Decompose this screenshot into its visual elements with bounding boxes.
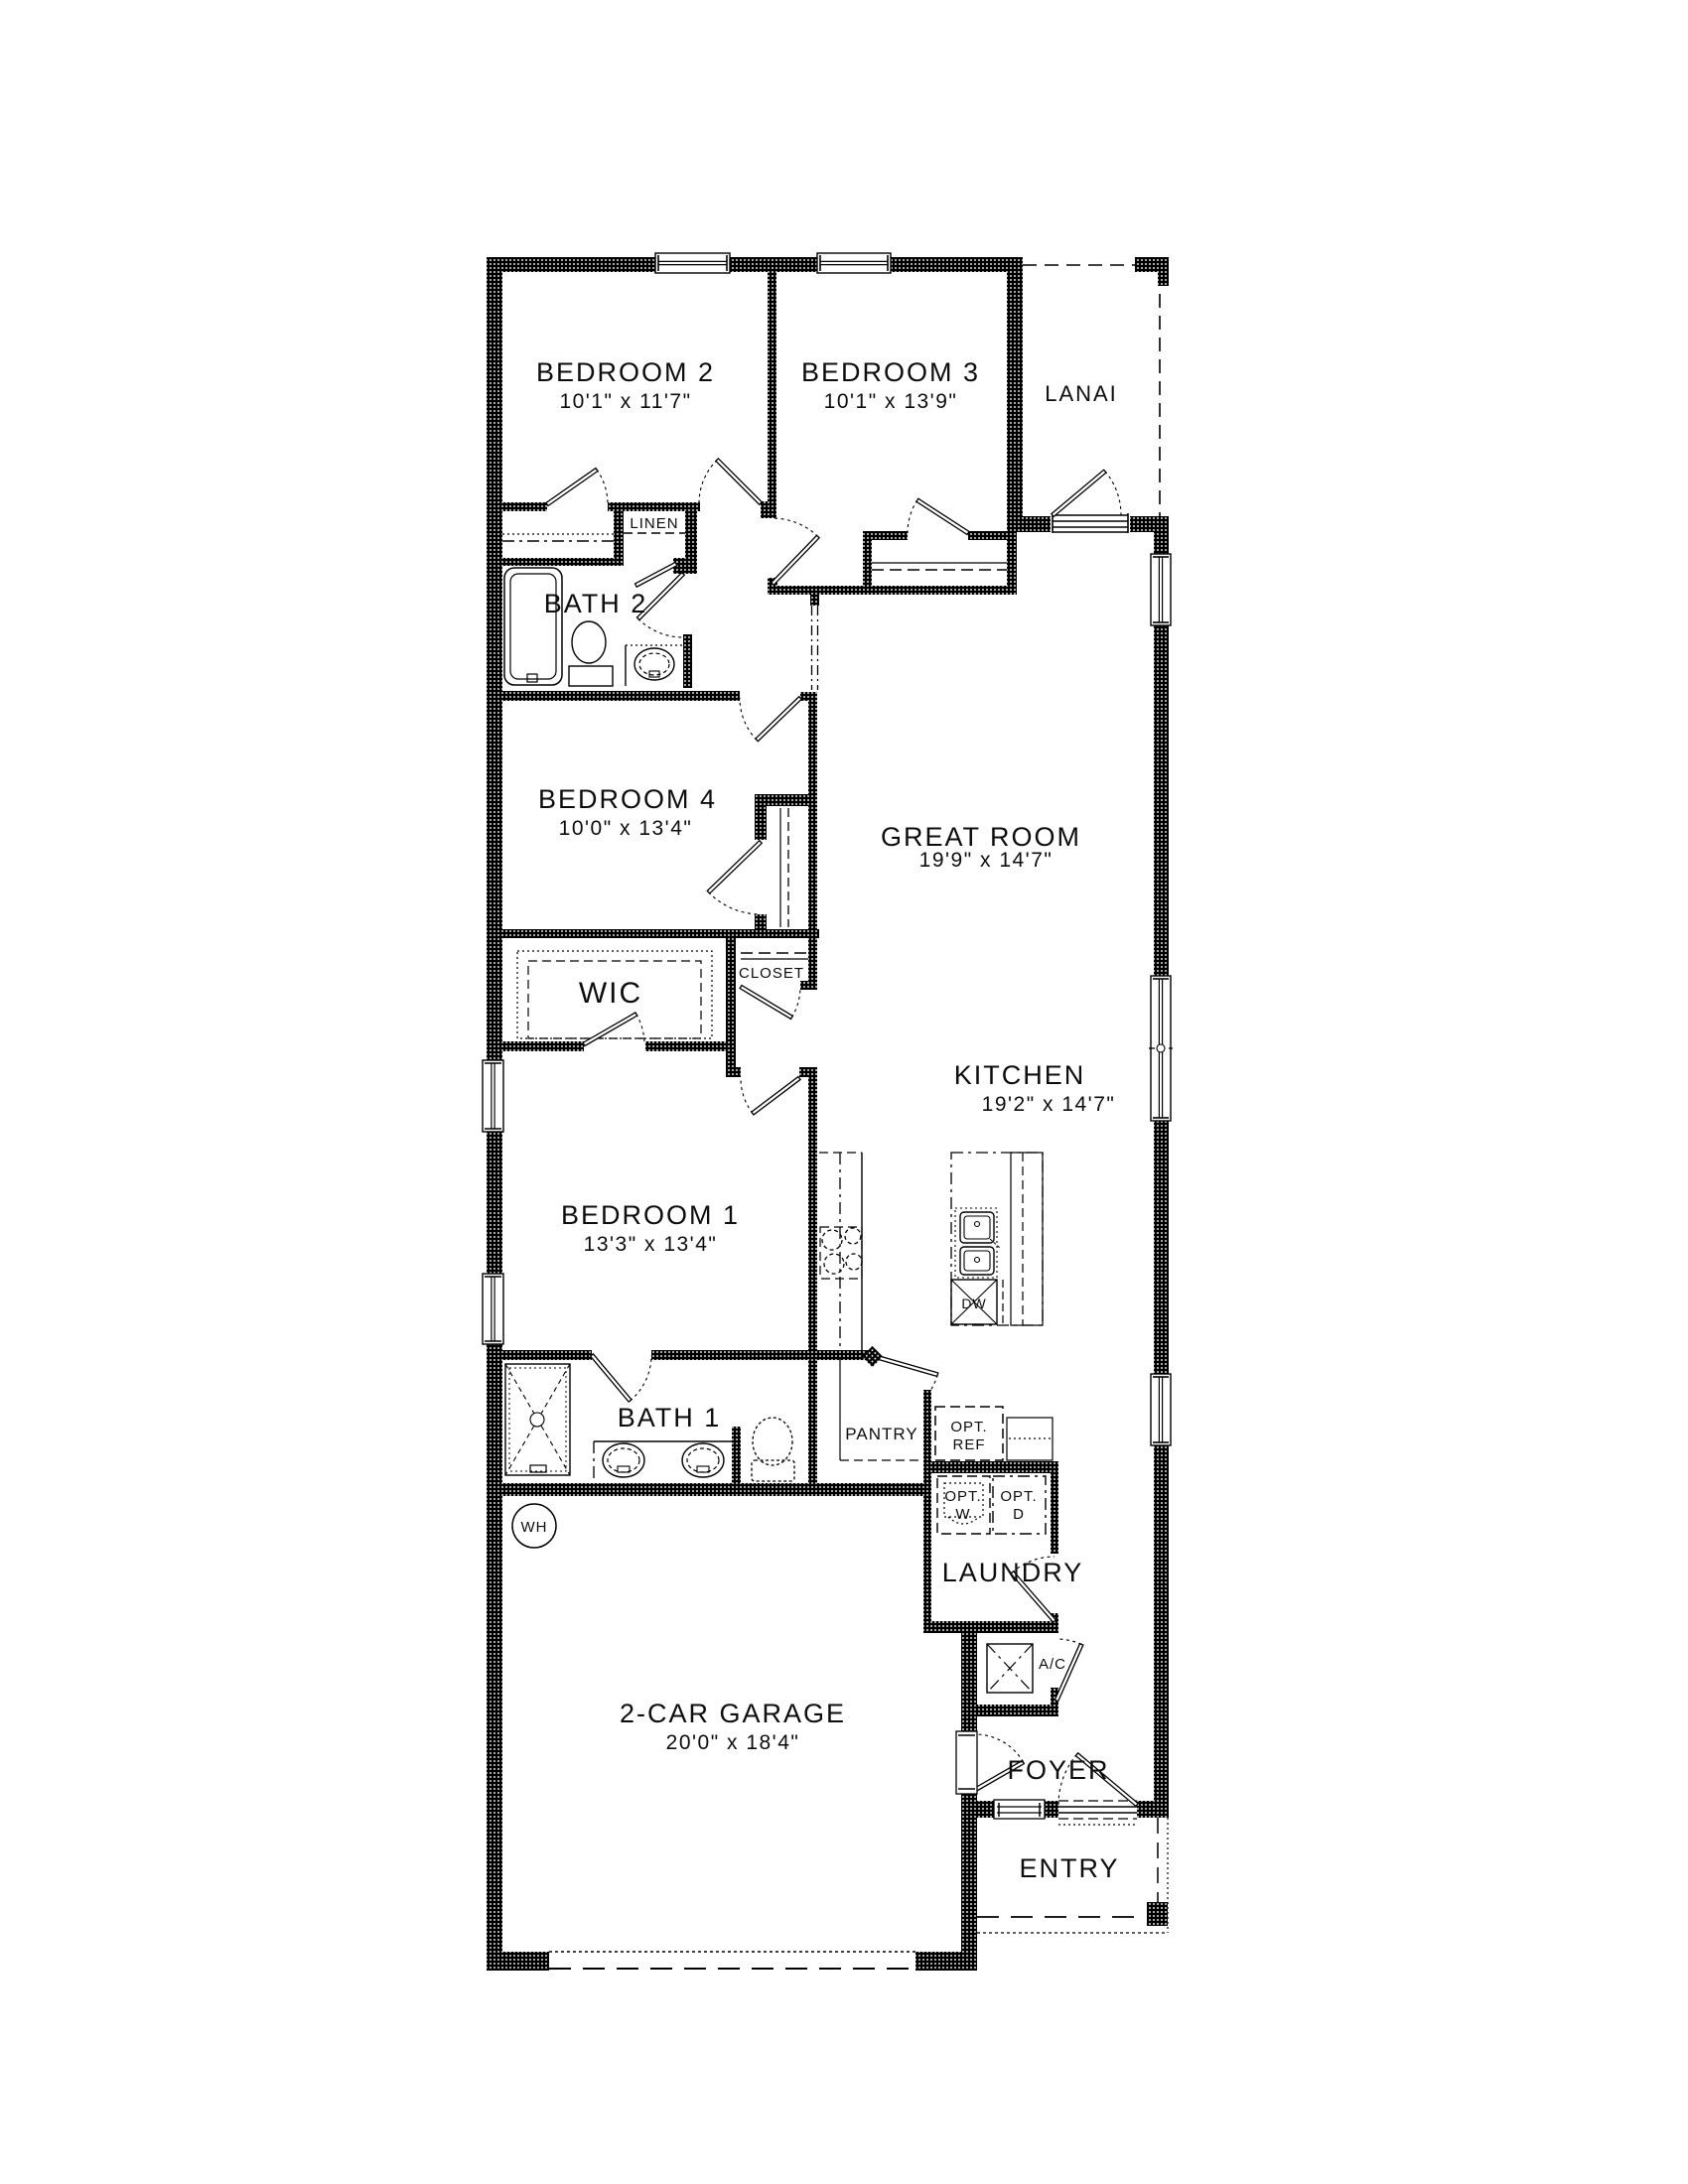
svg-text:BEDROOM 1: BEDROOM 1 [561, 1200, 740, 1230]
svg-text:10'1" x 13'9": 10'1" x 13'9" [824, 390, 958, 413]
svg-text:WH: WH [521, 1519, 548, 1536]
svg-text:ENTRY: ENTRY [1019, 1853, 1119, 1883]
svg-text:BATH 1: BATH 1 [618, 1403, 722, 1433]
svg-text:PANTRY: PANTRY [845, 1425, 917, 1443]
svg-text:OPT.: OPT. [944, 1488, 981, 1505]
svg-text:CLOSET: CLOSET [739, 965, 804, 982]
svg-text:W: W [955, 1506, 970, 1523]
svg-text:FOYER: FOYER [1007, 1755, 1109, 1785]
svg-text:19'9" x 14'7": 19'9" x 14'7" [919, 849, 1054, 872]
svg-text:DW: DW [961, 1296, 986, 1311]
svg-text:D: D [1013, 1506, 1025, 1523]
svg-text:BEDROOM 4: BEDROOM 4 [538, 784, 717, 814]
svg-text:BATH 2: BATH 2 [544, 589, 648, 618]
svg-text:19'2" x 14'7": 19'2" x 14'7" [982, 1093, 1116, 1116]
svg-text:LINEN: LINEN [630, 515, 678, 532]
svg-text:10'1" x 11'7": 10'1" x 11'7" [559, 390, 691, 413]
svg-text:2-CAR GARAGE: 2-CAR GARAGE [620, 1699, 846, 1728]
svg-text:GREAT ROOM: GREAT ROOM [881, 822, 1081, 852]
svg-text:20'0" x 18'4": 20'0" x 18'4" [666, 1731, 800, 1754]
svg-text:REF: REF [953, 1436, 986, 1453]
svg-text:KITCHEN: KITCHEN [954, 1060, 1086, 1090]
svg-text:A/C: A/C [1039, 1656, 1066, 1673]
svg-text:BEDROOM 3: BEDROOM 3 [801, 357, 980, 387]
svg-text:LANAI: LANAI [1045, 381, 1118, 406]
svg-text:13'3" x 13'4": 13'3" x 13'4" [584, 1233, 718, 1256]
svg-text:BEDROOM 2: BEDROOM 2 [536, 357, 715, 387]
svg-text:WIC: WIC [579, 977, 642, 1010]
svg-text:LAUNDRY: LAUNDRY [942, 1558, 1084, 1587]
svg-text:OPT.: OPT. [1000, 1488, 1037, 1505]
svg-text:10'0" x 13'4": 10'0" x 13'4" [559, 817, 693, 840]
svg-text:OPT.: OPT. [950, 1419, 987, 1435]
